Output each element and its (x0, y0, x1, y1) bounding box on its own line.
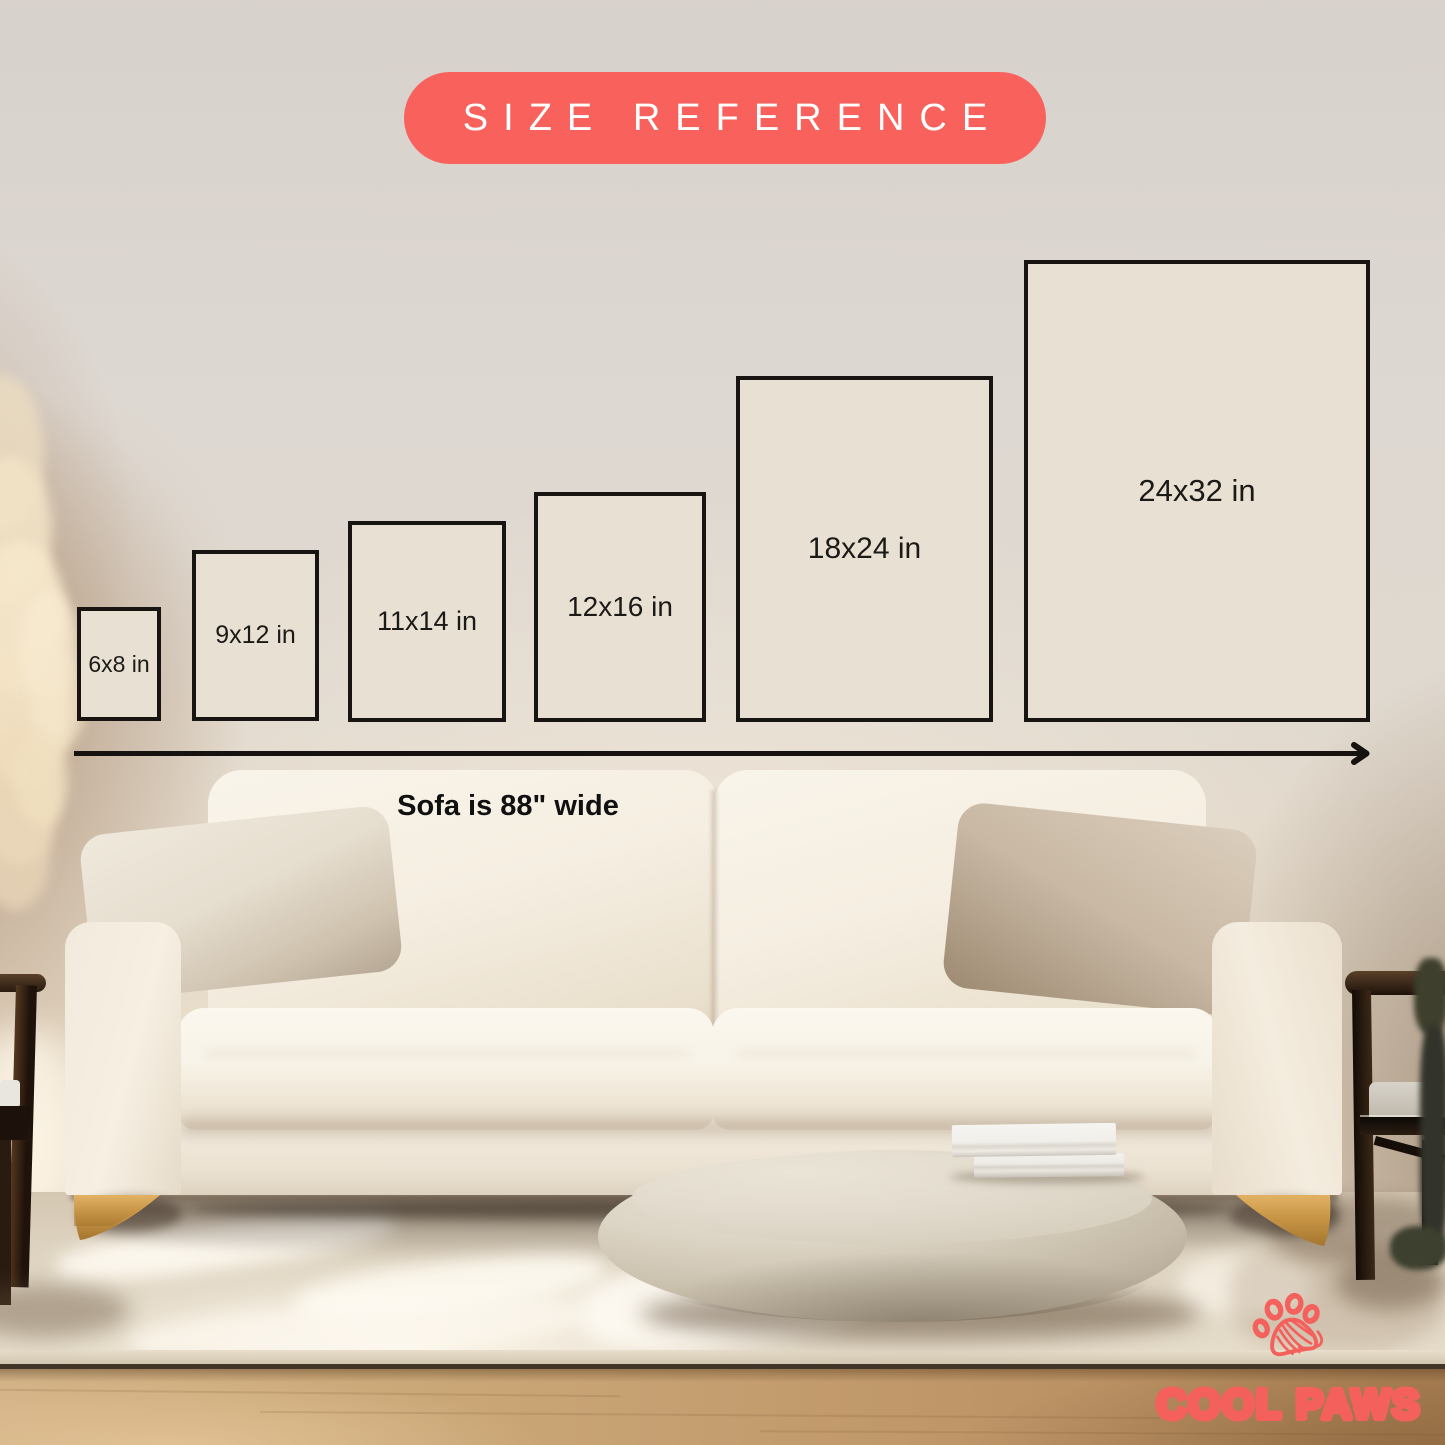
svg-text:COOL PAWS: COOL PAWS (1157, 1381, 1422, 1427)
